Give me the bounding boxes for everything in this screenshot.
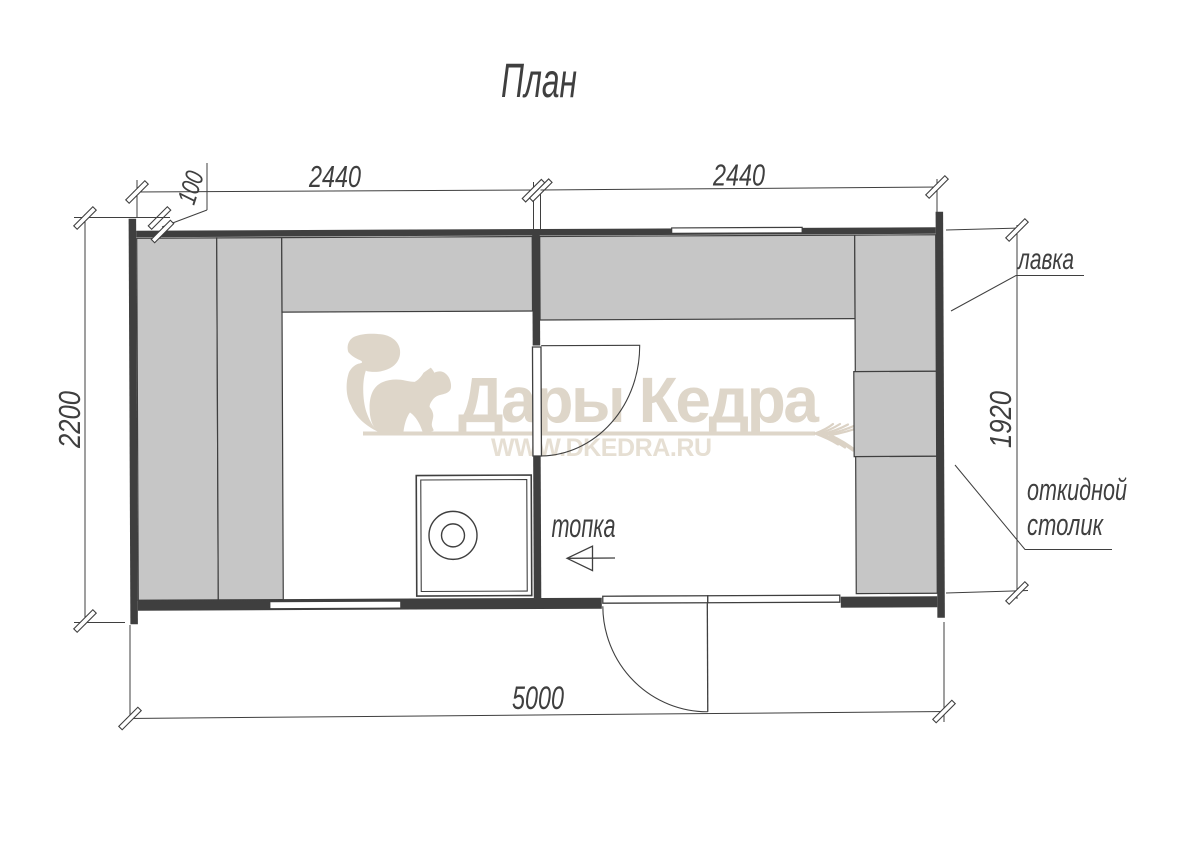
svg-text:откидной: откидной (1027, 472, 1127, 507)
svg-text:100: 100 (171, 167, 210, 208)
svg-text:2200: 2200 (52, 391, 87, 449)
svg-text:1920: 1920 (983, 391, 1018, 448)
svg-text:План: План (501, 55, 577, 108)
svg-text:2440: 2440 (308, 159, 361, 194)
svg-text:5000: 5000 (512, 680, 564, 716)
svg-text:лавка: лавка (1017, 243, 1074, 276)
svg-text:WWW.DKEDRA.RU: WWW.DKEDRA.RU (491, 434, 712, 462)
svg-text:топка: топка (552, 507, 616, 544)
svg-text:столик: столик (1027, 507, 1104, 542)
svg-text:Дары Кедра: Дары Кедра (458, 364, 819, 436)
svg-text:2440: 2440 (712, 158, 765, 193)
